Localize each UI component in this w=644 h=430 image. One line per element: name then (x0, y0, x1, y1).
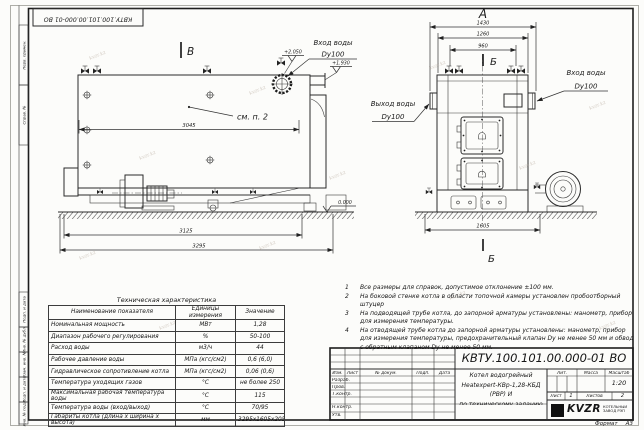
note-item: 3На подводящей трубе котла, до запорной … (345, 310, 637, 327)
section-mark-b-top: Б (490, 57, 497, 68)
svg-text:kvzr.kz: kvzr.kz (79, 250, 98, 262)
spec-header: Наименование показателя (49, 306, 176, 320)
title-block: КВТУ.100.101.00.000-01 ВО Котел водогрей… (330, 348, 633, 420)
margin-label: Взам. инв. № (21, 351, 26, 377)
margin-label: Перв. примен. (21, 40, 26, 69)
dim-1260: 1260 (438, 32, 528, 74)
company-name: КОТЕЛЬНЫЙ ЗАВОД РЭП (603, 405, 633, 413)
col-podp: Подп. (412, 371, 434, 376)
kvzr-logo-text: KVZR (567, 403, 603, 415)
row-tkontr: Т.контр. (332, 392, 359, 397)
svg-text:960: 960 (478, 44, 488, 50)
notes-list: 1Все размеры для справок, допустимое отк… (345, 284, 637, 352)
lower-door (457, 158, 503, 189)
svg-text:3295: 3295 (192, 244, 206, 250)
margin-label: Подп. и дата (21, 296, 26, 323)
mass-label: Масса (577, 371, 605, 376)
kvzr-logo-icon (551, 404, 564, 417)
spec-header: Значение (236, 306, 285, 320)
format-note: ФорматА3 (540, 421, 633, 427)
boiler-side-view (58, 58, 354, 219)
note-item: 1Все размеры для справок, допустимое отк… (345, 284, 637, 293)
section-mark-b-bottom: Б (488, 254, 495, 265)
row-razrab: Разраб. (332, 378, 359, 383)
svg-text:3125: 3125 (179, 229, 193, 235)
sheet-label: Лист (547, 394, 565, 399)
side-inlet-size: Dy100 (322, 51, 345, 59)
svg-text:0.000: 0.000 (338, 200, 352, 206)
spec-table-title: Техническая характеристика (48, 296, 285, 304)
doc-description: Котел водогрейный Heatexpert-КВр-1,28-КБ… (456, 371, 546, 405)
front-inlet-size: Dy100 (575, 83, 598, 91)
sheet-value: 1 (565, 393, 577, 399)
svg-text:+2.050: +2.050 (284, 50, 302, 56)
spec-header-row: Наименование показателя Единицы измерени… (49, 306, 285, 320)
col-data: Дата (434, 371, 455, 376)
svg-text:kvzr.kz: kvzr.kz (249, 85, 268, 97)
margin-label: Подп. и дата (21, 376, 26, 403)
spec-row: Габариты котла (длина х ширина х высота)… (49, 414, 285, 427)
blower-fan (535, 172, 583, 213)
upper-door (457, 117, 503, 154)
scale-value: 1:20 (605, 379, 633, 387)
spec-row: Диапазон рабочего регулирования%50-100 (49, 331, 285, 343)
svg-text:1430: 1430 (477, 21, 490, 27)
doc-number: КВТУ.100.101.00.000-01 ВО (455, 350, 633, 369)
spec-row: Максимальная рабочая температура воды°С1… (49, 389, 285, 402)
sheets-value: 2 (612, 393, 633, 399)
view-mark-a: А (478, 7, 487, 21)
note-item: 2На боковой стенке котла в области топоч… (345, 293, 637, 310)
boiler-front-annotations: А 1430 1260 960 Б Выход воды Dy100 Вход … (371, 7, 608, 265)
see-note-ref: см. п. 2 (237, 113, 268, 122)
front-outlet-label: Выход воды (371, 100, 416, 108)
svg-text:kvzr.kz: kvzr.kz (589, 100, 608, 112)
spec-table: Техническая характеристика Наименование … (48, 296, 285, 427)
spec-row: Номинальная мощностьМВт1,28 (49, 320, 285, 332)
svg-text:1605: 1605 (476, 224, 490, 230)
scale-label: Масштаб (605, 371, 633, 376)
spec-row: Температура воды (вход/выход)°С70/95 (49, 402, 285, 414)
col-list: Лист (345, 371, 360, 376)
sheets-label: Листов (577, 394, 612, 399)
dim-3295: 3295 (60, 214, 333, 254)
side-inlet-label: Вход воды (313, 39, 353, 47)
boiler-front-view (415, 54, 597, 226)
col-dokum: № докум. (360, 371, 412, 376)
margin-label: Справ. № (21, 106, 26, 125)
elevation-plus1930: +1.930 (326, 61, 353, 80)
front-inlet-label: Вход воды (566, 69, 606, 77)
row-prov: Пров. (332, 385, 359, 390)
spec-row: Рабочее давление водыМПа (кгс/см2)0,6 (6… (49, 354, 285, 366)
section-mark-v: В (187, 46, 194, 58)
row-nkontr: Н.контр. (332, 405, 359, 410)
col-izm: Изм. (330, 371, 345, 376)
spec-row: Расход водым3/ч44 (49, 343, 285, 355)
margin-label: Инв. № подл. (21, 400, 26, 427)
row-utv: Утв. (332, 413, 359, 418)
dim-3045: 3045 (79, 120, 299, 134)
elevation-plus2050: +2.050 (282, 50, 304, 74)
spec-row: Гидравлическое сопротивление котлаМПа (к… (49, 366, 285, 378)
margin-label-cells: Перв. примен. Справ. № Подп. и дата Инв.… (19, 25, 28, 426)
inlet-flange (271, 73, 293, 95)
svg-text:3045: 3045 (182, 123, 196, 129)
scanned-drawing-page: { "sheet": { "stamp_doc_number": "КВТУ.1… (0, 0, 644, 430)
svg-text:kvzr.kz: kvzr.kz (139, 150, 158, 162)
spec-header: Единицы измерения (176, 306, 236, 320)
margin-label: Инв. № дубл. (21, 326, 26, 353)
svg-text:1260: 1260 (477, 32, 490, 38)
svg-text:kvzr.kz: kvzr.kz (329, 170, 348, 182)
lit-label: Лит. (547, 371, 577, 376)
front-outlet-size: Dy100 (382, 113, 405, 121)
top-stamp: КВТУ.100.101.00.000-01 ВО (33, 9, 143, 27)
svg-text:kvzr.kz: kvzr.kz (89, 50, 108, 62)
svg-text:+1.930: +1.930 (332, 61, 350, 67)
spec-row: Температура уходящих газов°Сне более 250 (49, 377, 285, 389)
spec-table-grid: Наименование показателя Единицы измерени… (48, 305, 285, 427)
top-stamp-doc-number: КВТУ.100.101.00.000-01 ВО (44, 16, 133, 23)
